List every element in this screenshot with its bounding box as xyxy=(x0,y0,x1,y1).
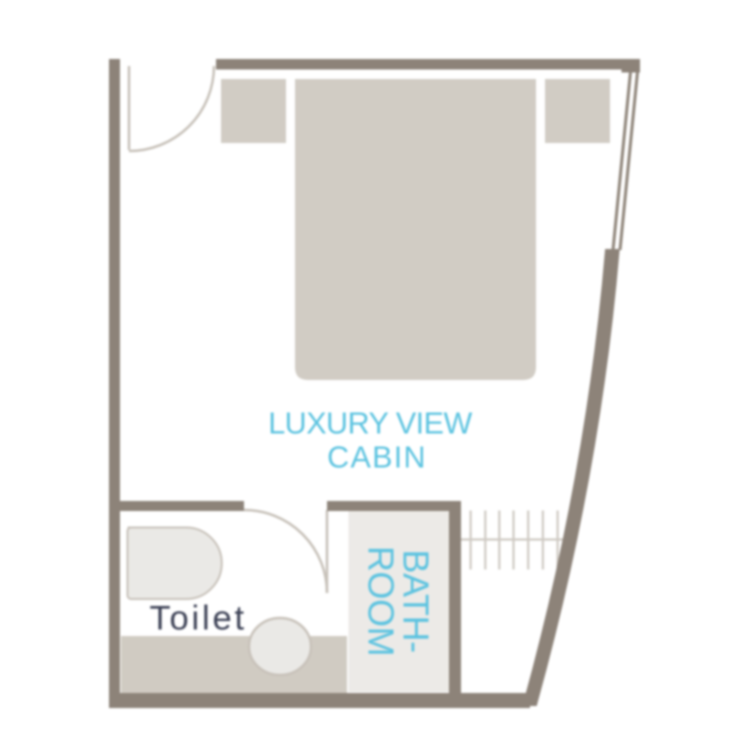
svg-text:CABIN: CABIN xyxy=(327,440,427,474)
svg-text:Toilet: Toilet xyxy=(150,599,247,637)
svg-text:LUXURY VIEW: LUXURY VIEW xyxy=(268,407,472,441)
svg-text:ROOM: ROOM xyxy=(361,546,402,656)
